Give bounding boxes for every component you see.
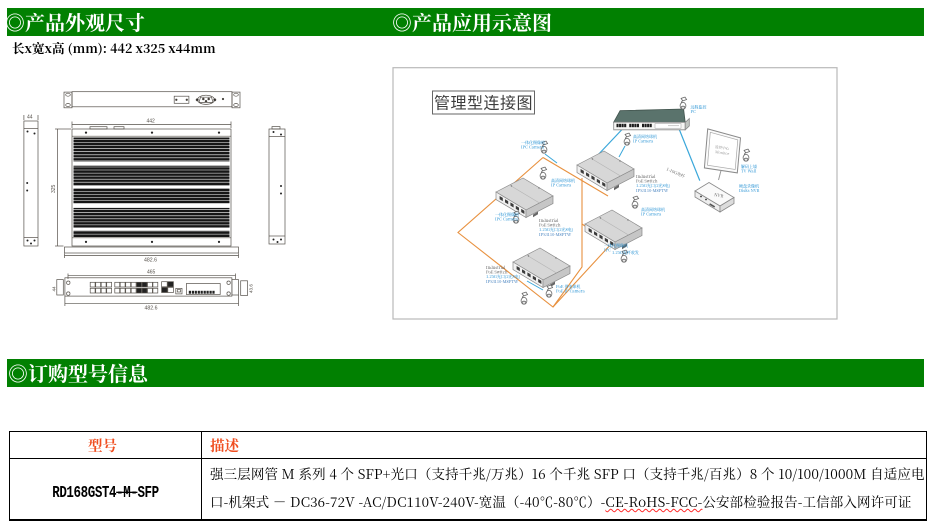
svg-text:IP Camera: IP Camera [551, 183, 572, 189]
svg-text:IPS3110-M8PTW: IPS3110-M8PTW [539, 232, 572, 238]
svg-text:Disks NVR: Disks NVR [739, 187, 760, 194]
svg-text:IPC Camera: IPC Camera [495, 217, 519, 223]
svg-text:IP Camera: IP Camera [633, 139, 654, 145]
svg-text:IPS3110-M8PTW: IPS3110-M8PTW [636, 188, 669, 194]
svg-text:管理型连接图: 管理型连接图 [434, 90, 533, 114]
svg-text:43.6: 43.6 [249, 284, 254, 293]
svg-text:IPC: IPC [604, 248, 611, 254]
svg-text:IPC Camera: IPC Camera [521, 145, 545, 151]
svg-text:465: 465 [147, 270, 156, 276]
svg-text:PoE IP Camera: PoE IP Camera [556, 289, 585, 295]
svg-text:325: 325 [51, 184, 57, 193]
svg-text:PC: PC [691, 109, 697, 115]
svg-text:482.6: 482.6 [145, 306, 158, 312]
svg-text:1-10G光纤: 1-10G光纤 [665, 165, 687, 180]
svg-text:IPS3110-M8PTW: IPS3110-M8PTW [486, 279, 519, 285]
svg-text:442: 442 [147, 119, 156, 125]
svg-text:TV Wall: TV Wall [741, 169, 757, 175]
svg-text:44: 44 [27, 115, 33, 121]
svg-text:44: 44 [52, 286, 57, 292]
svg-text:482.6: 482.6 [144, 258, 157, 264]
svg-text:IP Camera: IP Camera [641, 212, 662, 218]
svg-text:1.25G光纤收发: 1.25G光纤收发 [612, 249, 639, 256]
